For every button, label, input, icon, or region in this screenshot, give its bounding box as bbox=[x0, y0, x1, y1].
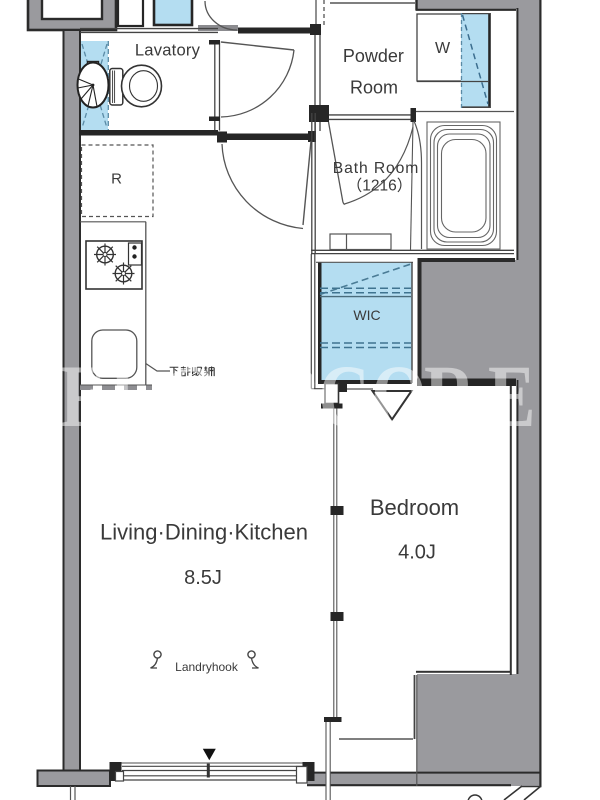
svg-text:8.5J: 8.5J bbox=[184, 567, 222, 589]
svg-text:（1216）: （1216） bbox=[347, 178, 412, 195]
svg-text:Bath Room: Bath Room bbox=[333, 160, 420, 177]
svg-text:Lavatory: Lavatory bbox=[135, 40, 201, 59]
svg-text:O: O bbox=[163, 348, 218, 446]
svg-text:F: F bbox=[60, 348, 103, 446]
svg-text:O: O bbox=[217, 348, 272, 446]
svg-text:W: W bbox=[435, 40, 451, 57]
svg-text:C: C bbox=[318, 348, 369, 446]
svg-text:4.0J: 4.0J bbox=[398, 542, 436, 564]
svg-text:R: R bbox=[424, 348, 476, 446]
svg-text:E: E bbox=[488, 348, 535, 446]
svg-text:Powder: Powder bbox=[343, 46, 404, 66]
svg-text:L: L bbox=[110, 348, 157, 446]
svg-text:R: R bbox=[111, 171, 122, 188]
svg-text:O: O bbox=[371, 348, 426, 446]
svg-text:R: R bbox=[270, 348, 322, 446]
svg-text:Living·Dining·Kitchen: Living·Dining·Kitchen bbox=[100, 520, 308, 545]
svg-text:Room: Room bbox=[350, 78, 398, 98]
svg-text:Bedroom: Bedroom bbox=[370, 495, 459, 520]
svg-text:WIC: WIC bbox=[353, 307, 380, 323]
svg-text:Landryhook: Landryhook bbox=[175, 660, 239, 674]
